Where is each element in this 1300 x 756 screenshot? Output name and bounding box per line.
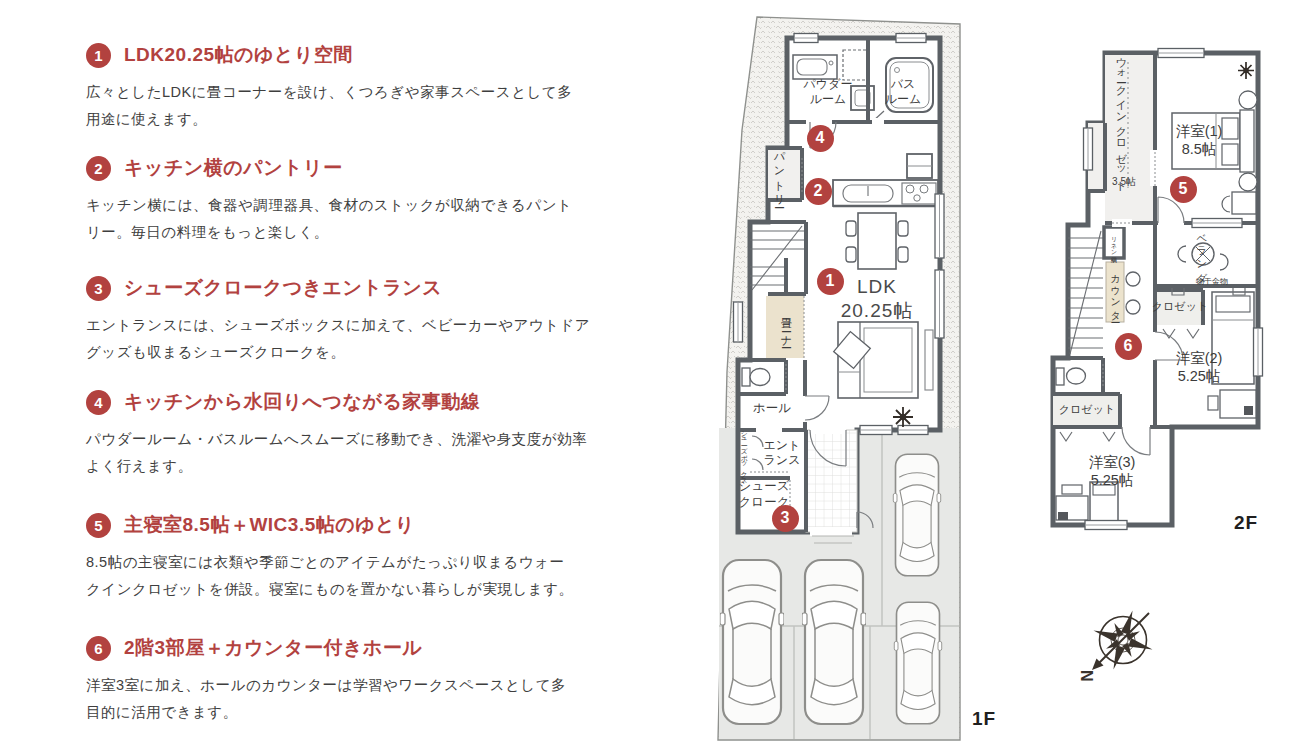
compass-north-label: N: [1078, 670, 1095, 682]
floorplan-1f-drawing: [690, 0, 1000, 756]
feature-number-badge: 3: [86, 276, 111, 301]
feature-description: 8.5帖の主寝室には衣類や季節ごとのアイテムがたっぷり収まるウォー クインクロゼ…: [86, 549, 661, 603]
feature-title: LDK20.25帖のゆとり空間: [124, 42, 353, 68]
feature-title: キッチンから水回りへつながる家事動線: [124, 389, 480, 415]
room-label-powder: パウダー ルーム: [804, 77, 853, 107]
feature-item-6: 6 2階3部屋＋カウンター付きホール 洋室3室に加え、ホールのカウンターは学習や…: [86, 635, 661, 726]
room-label-closet-bedroom3: クロゼット: [1059, 403, 1115, 417]
kitchen-counter-icon: [833, 180, 938, 206]
floor-label-2f: 2F: [1234, 512, 1258, 534]
room-label-shoes-box: シューズボックス: [741, 426, 748, 482]
room-label-hall: ホール: [753, 401, 791, 417]
floorplan-2f-drawing: [1040, 40, 1270, 540]
feature-description: エントランスには、シューズボックスに加えて、ベビーカーやアウトドア グッズも収ま…: [86, 312, 661, 366]
feature-number-badge: 5: [86, 513, 111, 538]
plan-marker-2: 2: [805, 178, 832, 205]
plan-marker-4: 4: [807, 125, 834, 152]
room-label-linen-storage: リネン収納: [1111, 232, 1117, 253]
feature-item-1: 1 LDK20.25帖のゆとり空間 広々としたLDKに畳コーナーを設け、くつろぎ…: [86, 42, 661, 133]
feature-number-badge: 4: [86, 390, 111, 415]
feature-item-4: 4 キッチンから水回りへつながる家事動線 パウダールーム・バスルームへスムーズに…: [86, 389, 661, 480]
room-label-pantry: パントリー: [774, 144, 785, 204]
room-label-tatami-corner: 畳コーナー: [781, 309, 792, 344]
room-label-closet-bedroom2: クロゼット: [1152, 300, 1208, 314]
feature-title: 2階3部屋＋カウンター付きホール: [124, 635, 422, 661]
room-label-bedroom3: 洋室(3) 5.25帖: [1089, 453, 1136, 489]
toilet-icon: [1056, 368, 1086, 385]
room-label-drying-hardware: 物干金物: [1196, 277, 1228, 287]
sofa-icon: [834, 322, 933, 398]
plan-marker-6: 6: [1115, 333, 1142, 360]
feature-description: パウダールーム・バスルームへスムーズに移動でき、洗濯や身支度が効率 よく行えます…: [86, 426, 661, 480]
feature-description: 洋室3室に加え、ホールのカウンターは学習やワークスペースとして多 目的に活用でき…: [86, 672, 661, 726]
room-label-counter: カウンター: [1110, 267, 1120, 318]
room-label-wic-size: 3.5帖: [1112, 176, 1136, 189]
feature-item-2: 2 キッチン横のパントリー キッチン横には、食器や調理器具、食材のストックが収納…: [86, 155, 661, 246]
sink-icon: [793, 55, 837, 79]
plant-icon: [893, 407, 913, 427]
room-label-bath: バス ルーム: [885, 77, 922, 107]
floor-label-1f: 1F: [972, 708, 996, 730]
room-label-entrance: エント ランス: [764, 438, 801, 468]
room-label-ldk: LDK 20.25帖: [841, 275, 914, 323]
plan-marker-5: 5: [1170, 176, 1197, 203]
feature-title: シューズクロークつきエントランス: [124, 275, 442, 301]
flyer-page: 1 LDK20.25帖のゆとり空間 広々としたLDKに畳コーナーを設け、くつろぎ…: [0, 0, 1300, 756]
feature-description: 広々としたLDKに畳コーナーを設け、くつろぎや家事スペースとして多 用途に使えま…: [86, 79, 661, 133]
plan-marker-1: 1: [817, 268, 844, 295]
refrigerator-icon: [907, 154, 932, 178]
room-label-wic: ウォークインクロゼット: [1116, 50, 1127, 187]
feature-title: キッチン横のパントリー: [124, 155, 343, 181]
wic-floor: [1105, 55, 1155, 223]
room-label-veranda: ベランダ: [1197, 226, 1208, 278]
toilet-icon: [742, 368, 770, 386]
feature-number-badge: 2: [86, 156, 111, 181]
feature-item-3: 3 シューズクロークつきエントランス エントランスには、シューズボックスに加えて…: [86, 275, 661, 366]
feature-number-badge: 1: [86, 43, 111, 68]
plan-marker-3: 3: [772, 505, 799, 532]
feature-number-badge: 6: [86, 636, 111, 661]
feature-item-5: 5 主寝室8.5帖＋WIC3.5帖のゆとり 8.5帖の主寝室には衣類や季節ごとの…: [86, 512, 661, 603]
feature-description: キッチン横には、食器や調理器具、食材のストックが収納できるパント リー。毎日の料…: [86, 192, 661, 246]
compass-icon: N: [1078, 598, 1168, 693]
room-label-bedroom2: 洋室(2) 5.25帖: [1176, 349, 1223, 385]
feature-title: 主寝室8.5帖＋WIC3.5帖のゆとり: [124, 512, 415, 538]
room-label-bedroom1: 洋室(1) 8.5帖: [1176, 122, 1223, 158]
